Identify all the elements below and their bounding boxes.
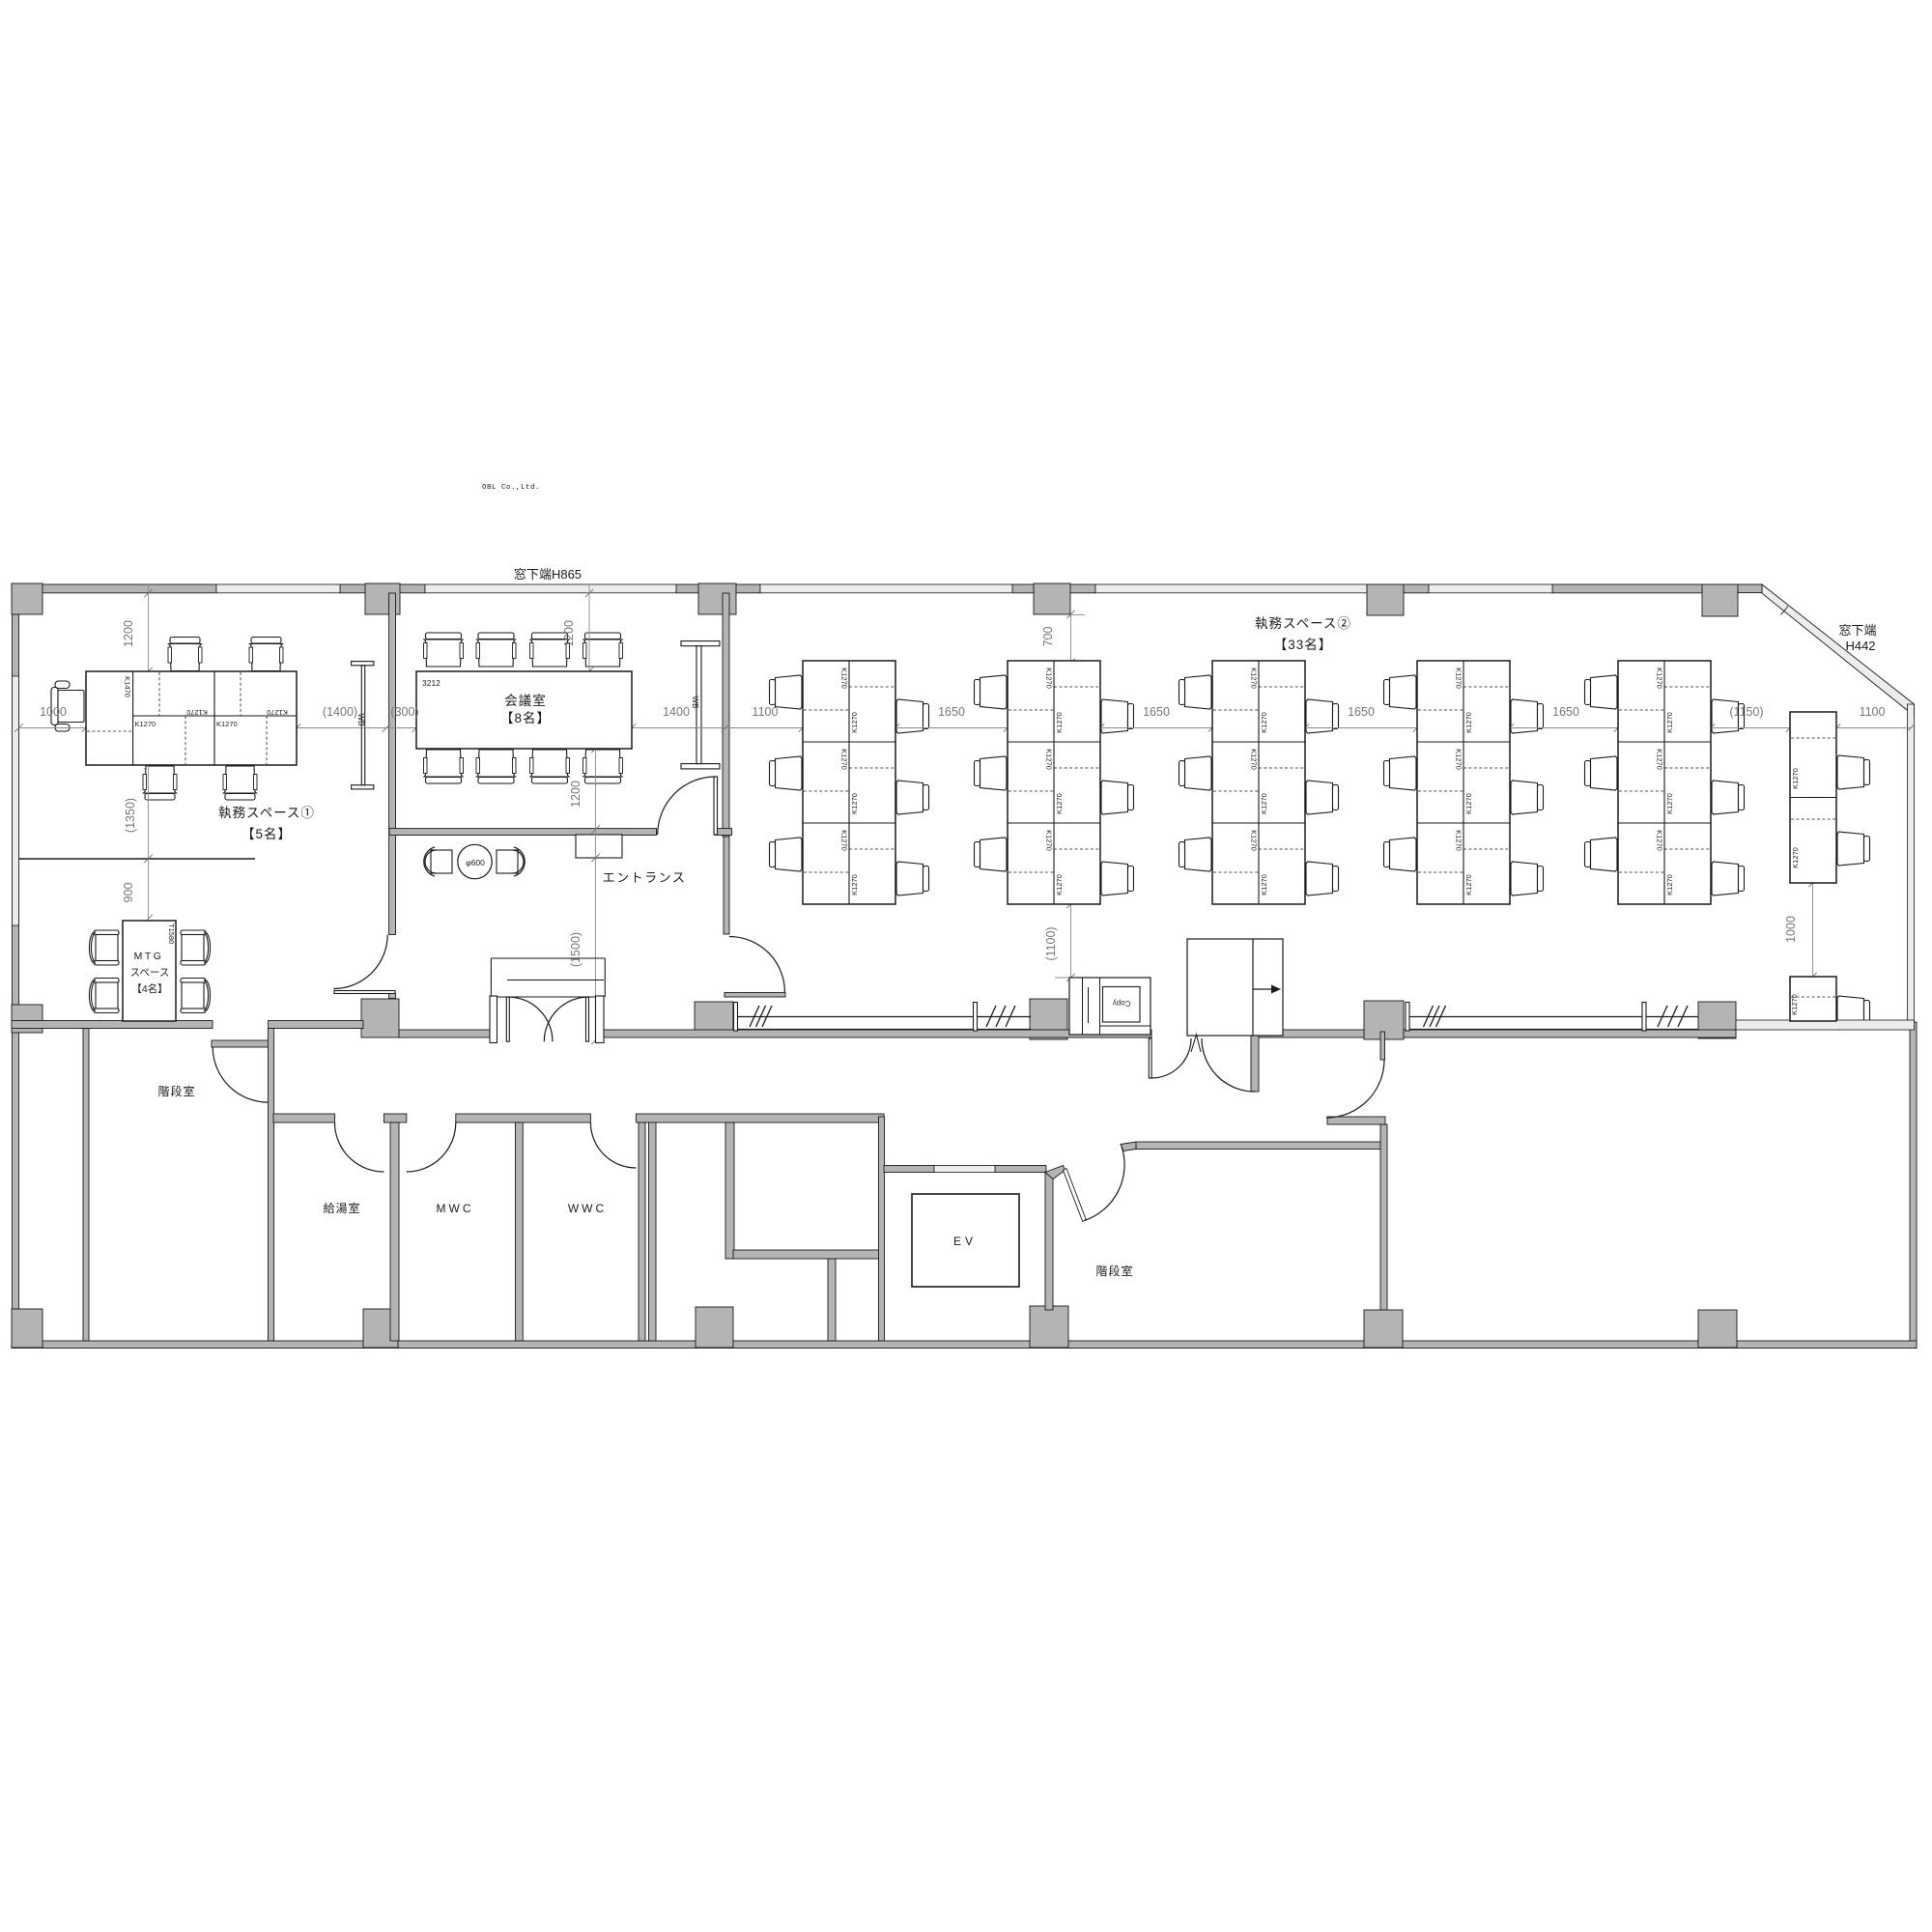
svg-text:執務スペース①: 執務スペース① [218, 806, 315, 820]
svg-text:MTG: MTG [134, 951, 164, 962]
svg-text:MWC: MWC [437, 1202, 474, 1215]
svg-text:1650: 1650 [1348, 705, 1375, 719]
svg-text:EV: EV [953, 1235, 977, 1248]
svg-text:T1580: T1580 [167, 923, 176, 944]
svg-text:WB: WB [691, 696, 699, 709]
svg-text:K1270: K1270 [1260, 874, 1268, 895]
svg-text:(1150): (1150) [1729, 705, 1763, 719]
svg-text:給湯室: 給湯室 [323, 1201, 360, 1215]
svg-text:K1270: K1270 [1045, 749, 1054, 770]
svg-text:900: 900 [122, 883, 135, 903]
svg-text:(1400): (1400) [323, 705, 357, 719]
svg-text:WWC: WWC [568, 1202, 607, 1215]
svg-text:1400: 1400 [663, 705, 690, 719]
svg-text:K1270: K1270 [1045, 668, 1054, 689]
svg-text:K1270: K1270 [1055, 793, 1064, 814]
svg-text:700: 700 [1041, 627, 1055, 647]
svg-text:K1270: K1270 [1250, 668, 1259, 689]
svg-text:(300): (300) [390, 705, 418, 719]
svg-text:K1270: K1270 [1656, 830, 1664, 851]
svg-text:K1270: K1270 [1790, 994, 1799, 1015]
svg-text:K1270: K1270 [1791, 768, 1800, 789]
svg-text:K1270: K1270 [1665, 874, 1674, 895]
svg-text:K1270: K1270 [1260, 793, 1268, 814]
svg-text:K1270: K1270 [1665, 793, 1674, 814]
svg-text:(1350): (1350) [124, 798, 137, 833]
svg-text:K1270: K1270 [135, 720, 156, 728]
svg-text:K1270: K1270 [840, 830, 849, 851]
svg-text:階段室: 階段室 [1095, 1264, 1133, 1278]
svg-text:H442: H442 [1845, 639, 1875, 653]
svg-text:1650: 1650 [1552, 705, 1579, 719]
svg-text:窓下端H865: 窓下端H865 [514, 567, 582, 582]
svg-text:K1270: K1270 [850, 874, 859, 895]
svg-text:K1270: K1270 [1656, 668, 1664, 689]
svg-text:K1270: K1270 [1250, 749, 1259, 770]
svg-text:1650: 1650 [938, 705, 965, 719]
svg-text:K1270: K1270 [840, 749, 849, 770]
svg-text:K1470: K1470 [124, 676, 132, 697]
svg-text:K1270: K1270 [1464, 793, 1473, 814]
svg-text:1650: 1650 [1143, 705, 1170, 719]
svg-text:スペース: スペース [130, 967, 170, 979]
svg-text:1200: 1200 [569, 781, 582, 808]
svg-text:K1270: K1270 [1665, 712, 1674, 733]
svg-text:Copy: Copy [1113, 999, 1131, 1008]
svg-text:エントランス: エントランス [603, 870, 687, 885]
svg-text:K1270: K1270 [1260, 712, 1268, 733]
svg-text:WB: WB [356, 714, 365, 726]
svg-text:K1270: K1270 [186, 708, 208, 717]
svg-text:OBL Co.,Ltd.: OBL Co.,Ltd. [482, 484, 540, 492]
svg-text:K1270: K1270 [216, 720, 238, 728]
svg-text:1100: 1100 [753, 705, 779, 719]
svg-text:【4名】: 【4名】 [131, 982, 167, 995]
svg-text:K1270: K1270 [1055, 712, 1064, 733]
svg-text:1100: 1100 [1860, 705, 1886, 719]
svg-text:K1270: K1270 [1455, 830, 1463, 851]
svg-text:K1270: K1270 [1656, 749, 1664, 770]
svg-text:K1270: K1270 [840, 668, 849, 689]
svg-text:K1270: K1270 [1455, 749, 1463, 770]
svg-text:執務スペース②: 執務スペース② [1255, 616, 1351, 631]
svg-text:(1100): (1100) [1044, 926, 1058, 960]
svg-text:K1270: K1270 [1250, 830, 1259, 851]
svg-text:【33名】: 【33名】 [1274, 638, 1333, 652]
svg-text:K1270: K1270 [1455, 668, 1463, 689]
svg-text:K1270: K1270 [267, 708, 288, 717]
svg-text:窓下端: 窓下端 [1838, 623, 1876, 638]
svg-text:K1270: K1270 [1791, 847, 1800, 868]
svg-text:会議室: 会議室 [504, 693, 547, 708]
svg-text:φ600: φ600 [466, 858, 485, 867]
svg-text:(1500): (1500) [569, 932, 582, 967]
svg-text:【8名】: 【8名】 [500, 711, 551, 725]
svg-text:【5名】: 【5名】 [241, 827, 292, 841]
svg-text:1000: 1000 [40, 705, 67, 719]
svg-text:1000: 1000 [1784, 916, 1798, 943]
svg-text:K1270: K1270 [850, 712, 859, 733]
svg-text:K1270: K1270 [850, 793, 859, 814]
svg-text:1200: 1200 [122, 620, 135, 647]
svg-text:階段室: 階段室 [157, 1084, 195, 1098]
svg-text:K1270: K1270 [1464, 874, 1473, 895]
svg-text:K1270: K1270 [1055, 874, 1064, 895]
svg-text:1200: 1200 [562, 620, 576, 647]
svg-text:K1270: K1270 [1045, 830, 1054, 851]
svg-text:3212: 3212 [422, 678, 440, 688]
svg-text:K1270: K1270 [1464, 712, 1473, 733]
